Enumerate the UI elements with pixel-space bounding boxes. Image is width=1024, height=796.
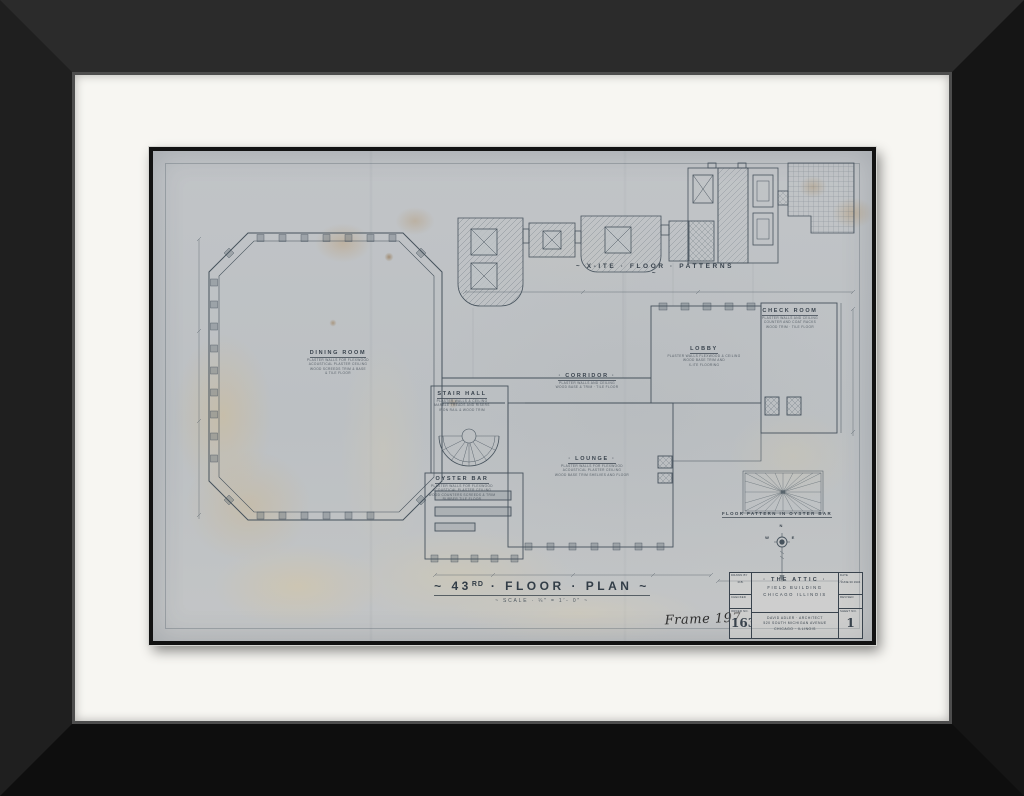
checked-cell: CHECKED — [730, 595, 751, 609]
blueprint-paper: ~ X-ITE · FLOOR · PATTERNS ~ DINING ROOM… — [153, 151, 872, 641]
drawing-scale-note: ~ SCALE · ¼″ = 1′- 0″ ~ — [402, 598, 682, 604]
room-label-lounge: · LOUNGE · PLASTER WALLS FOR FLEXWOOD AC… — [542, 456, 642, 477]
date-cell: DATE JUNE 30 1934 — [839, 573, 862, 595]
revised-cell: REVISED — [839, 595, 862, 609]
dining-room-outline — [209, 233, 442, 520]
drawing-title: ~ 43RD · FLOOR · PLAN ~ — [402, 579, 682, 596]
title-block: DRAWN BY R.B. CHECKED ORDER NO. 163 — [729, 572, 863, 639]
compass-east-letter: E — [787, 535, 799, 540]
title-block-center-column: · THE ATTIC · FIELD BUILDING CHICAGO ILL… — [752, 573, 838, 638]
framed-blueprint-photo: ~ X-ITE · FLOOR · PATTERNS ~ DINING ROOM… — [0, 0, 1024, 796]
room-label-dining: DINING ROOM PLASTER WALLS FOR FLEXWOOD A… — [278, 350, 398, 376]
xite-floor-patterns-label: ~ X-ITE · FLOOR · PATTERNS ~ — [575, 263, 735, 277]
dimension-lines — [197, 237, 855, 583]
room-label-check-room: CHECK ROOM PLASTER WALLS AND CEILING COU… — [740, 308, 840, 329]
top-pattern-band — [458, 163, 855, 306]
room-label-oyster-bar: OYSTER BAR PLASTER WALLS FOR FLEXWOOD AC… — [410, 476, 514, 502]
mat-board: ~ X-ITE · FLOOR · PATTERNS ~ DINING ROOM… — [72, 72, 952, 724]
sunburst-detail — [743, 471, 823, 513]
room-label-stair-hall: STAIR HALL PLASTER WALLS & CEILING MARBL… — [414, 391, 510, 412]
sheet-no-cell: SHEET NO. 1 — [839, 609, 862, 638]
blueprint-print: ~ X-ITE · FLOOR · PATTERNS ~ DINING ROOM… — [149, 147, 876, 645]
oyster-bar-pattern-label: FLOOR PATTERN IN OYSTER BAR — [712, 511, 842, 518]
compass-north-letter: N — [775, 523, 787, 528]
floor-plan-linework — [153, 151, 872, 641]
compass-west-letter: W — [761, 535, 773, 540]
room-label-corridor: · CORRIDOR · PLASTER WALLS AND CEILING W… — [537, 373, 637, 390]
project-name-cell: · THE ATTIC · FIELD BUILDING CHICAGO ILL… — [752, 573, 838, 613]
spiral-stair — [439, 429, 499, 466]
room-label-lobby: LOBBY PLASTER WALLS FLEXWOOD & CEILING W… — [654, 346, 754, 367]
architect-cell: DAVID ADLER · ARCHITECT 520 SOUTH MICHIG… — [752, 613, 838, 638]
order-no-cell: ORDER NO. 163 — [730, 609, 751, 638]
title-block-left-column: DRAWN BY R.B. CHECKED ORDER NO. 163 — [730, 573, 752, 638]
title-block-right-column: DATE JUNE 30 1934 REVISED SHEET NO. 1 — [838, 573, 862, 638]
drawn-by-cell: DRAWN BY R.B. — [730, 573, 751, 595]
